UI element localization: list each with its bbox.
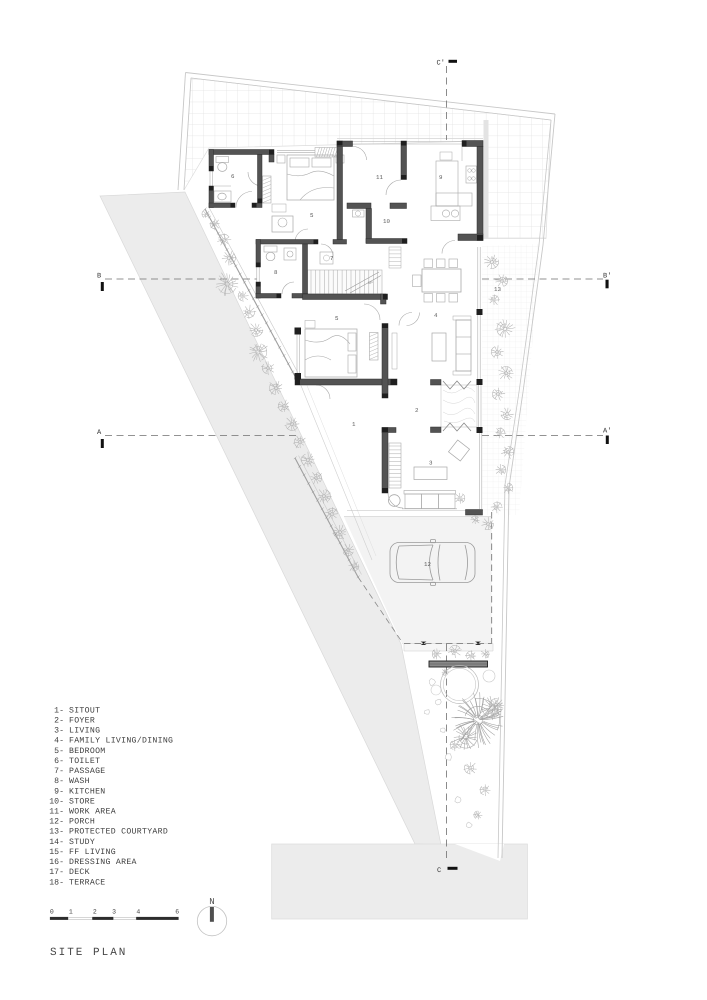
svg-text:1: 1 xyxy=(69,909,73,916)
svg-text:9: 9 xyxy=(439,174,443,181)
svg-text:6: 6 xyxy=(175,909,179,916)
svg-text:A': A' xyxy=(603,427,611,436)
svg-text:3: 3 xyxy=(112,909,116,916)
svg-text:N: N xyxy=(209,897,214,907)
svg-text:FOYER: FOYER xyxy=(69,716,95,725)
svg-text:15-: 15- xyxy=(49,848,64,857)
svg-text:B': B' xyxy=(603,272,611,281)
svg-text:TERRACE: TERRACE xyxy=(69,878,106,887)
svg-text:0: 0 xyxy=(50,909,54,916)
svg-text:WASH: WASH xyxy=(69,777,90,786)
svg-text:8-: 8- xyxy=(54,777,64,786)
svg-text:FF LIVING: FF LIVING xyxy=(69,848,116,857)
svg-text:9-: 9- xyxy=(54,787,64,796)
svg-text:PORCH: PORCH xyxy=(69,818,95,827)
svg-text:14-: 14- xyxy=(49,838,64,847)
svg-text:6: 6 xyxy=(231,173,235,180)
svg-text:16-: 16- xyxy=(49,858,64,867)
svg-text:STUDY: STUDY xyxy=(69,838,95,847)
svg-text:8: 8 xyxy=(274,269,278,276)
svg-text:4: 4 xyxy=(434,312,438,319)
svg-text:PASSAGE: PASSAGE xyxy=(69,767,106,776)
svg-text:SITE PLAN: SITE PLAN xyxy=(50,947,127,959)
svg-text:STORE: STORE xyxy=(69,797,95,806)
svg-text:5: 5 xyxy=(310,212,314,219)
svg-text:10-: 10- xyxy=(49,797,64,806)
svg-text:2: 2 xyxy=(415,407,419,414)
svg-text:BEDROOM: BEDROOM xyxy=(69,747,106,756)
svg-text:UP: UP xyxy=(368,281,373,286)
svg-text:3-: 3- xyxy=(54,727,64,736)
svg-text:7-: 7- xyxy=(54,767,64,776)
svg-text:2: 2 xyxy=(93,909,97,916)
svg-text:LIVING: LIVING xyxy=(69,727,100,736)
svg-text:WORK AREA: WORK AREA xyxy=(69,808,116,817)
svg-text:TOILET: TOILET xyxy=(69,757,100,766)
svg-text:6-: 6- xyxy=(54,757,64,766)
svg-text:17-: 17- xyxy=(49,868,64,877)
svg-text:4-: 4- xyxy=(54,737,64,746)
svg-text:C: C xyxy=(437,867,441,875)
svg-text:KITCHEN: KITCHEN xyxy=(69,787,106,796)
svg-text:12: 12 xyxy=(424,561,431,568)
svg-text:11: 11 xyxy=(376,174,383,181)
svg-text:DRESSING AREA: DRESSING AREA xyxy=(69,858,137,867)
svg-text:13-: 13- xyxy=(49,828,64,837)
svg-text:PROTECTED COURTYARD: PROTECTED COURTYARD xyxy=(69,828,168,837)
svg-text:4: 4 xyxy=(136,909,140,916)
svg-text:7: 7 xyxy=(330,255,334,262)
svg-text:18-: 18- xyxy=(49,878,64,887)
svg-text:11-: 11- xyxy=(49,808,64,817)
svg-text:DECK: DECK xyxy=(69,868,90,877)
svg-text:B: B xyxy=(97,273,101,281)
svg-text:FAMILY LIVING/DINING: FAMILY LIVING/DINING xyxy=(69,737,173,746)
svg-text:5-: 5- xyxy=(54,747,64,756)
svg-text:5: 5 xyxy=(335,315,339,322)
svg-text:1: 1 xyxy=(352,421,356,428)
svg-text:1-: 1- xyxy=(54,706,64,715)
svg-text:3: 3 xyxy=(429,460,433,467)
svg-text:12-: 12- xyxy=(49,818,64,827)
svg-text:10: 10 xyxy=(383,218,390,225)
svg-text:C': C' xyxy=(437,59,445,68)
svg-text:13: 13 xyxy=(494,286,501,293)
svg-text:2-: 2- xyxy=(54,716,64,725)
svg-text:SITOUT: SITOUT xyxy=(69,706,100,715)
